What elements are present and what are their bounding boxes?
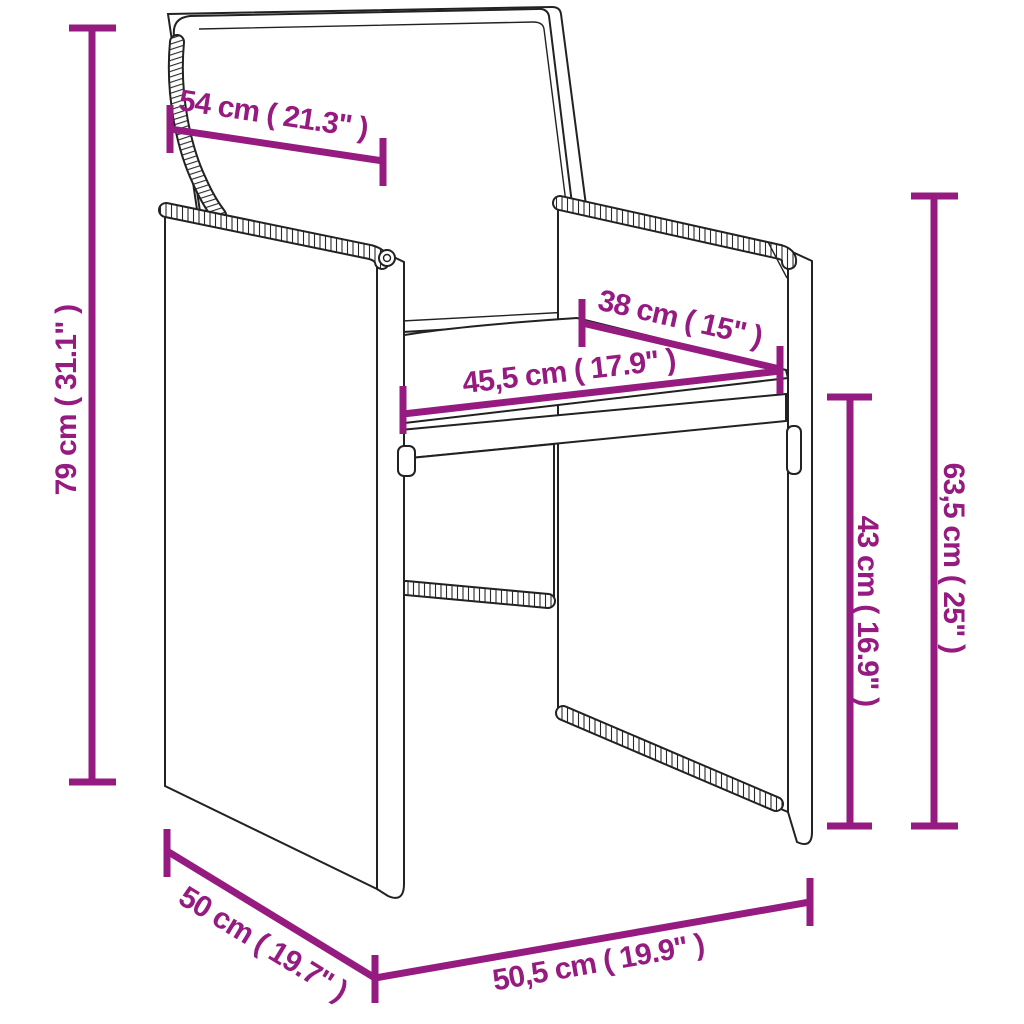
dimension-seat-height-label: 43 cm ( 16.9" ) bbox=[851, 516, 884, 707]
right-arm-front-edge bbox=[788, 250, 812, 844]
dimension-armrest-height-label: 63,5 cm ( 25" ) bbox=[937, 463, 970, 654]
left-armrest-bracket bbox=[398, 446, 415, 476]
product-dimension-diagram: 54 cm ( 21.3" ) 79 cm ( 31.1" ) 38 cm ( … bbox=[0, 0, 1024, 1024]
left-arm-outer-face bbox=[165, 206, 377, 889]
left-arm-panel bbox=[165, 206, 404, 898]
dimension-overall-height-label: 79 cm ( 31.1" ) bbox=[50, 305, 83, 496]
right-armrest-bracket bbox=[787, 426, 801, 474]
seat-box-front bbox=[400, 444, 554, 600]
left-arm-roll-end bbox=[379, 250, 395, 266]
left-arm-front-edge bbox=[377, 249, 404, 898]
chair-dimension-drawing: 54 cm ( 21.3" ) 79 cm ( 31.1" ) 38 cm ( … bbox=[0, 0, 1024, 1024]
